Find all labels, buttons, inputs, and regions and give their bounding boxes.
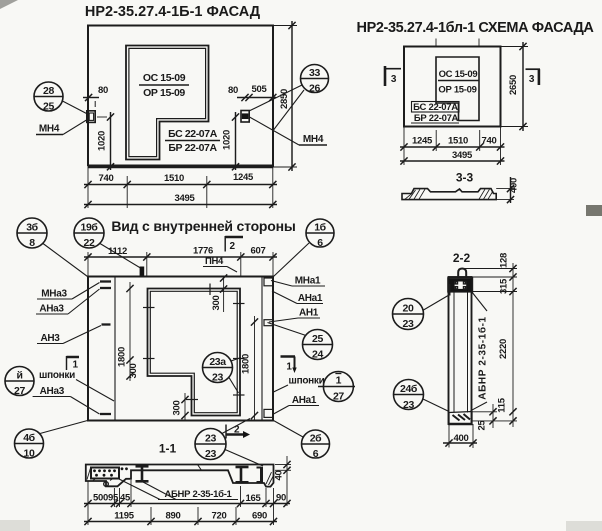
svg-text:1: 1	[286, 362, 292, 373]
svg-text:АНа1: АНа1	[298, 293, 323, 304]
svg-text:720: 720	[212, 511, 227, 522]
svg-text:2220: 2220	[498, 339, 509, 359]
svg-text:МНа1: МНа1	[295, 276, 321, 287]
svg-text:23: 23	[212, 372, 223, 384]
svg-text:40: 40	[274, 471, 285, 481]
svg-text:1776: 1776	[193, 246, 213, 257]
svg-text:24б: 24б	[400, 383, 418, 395]
svg-text:2: 2	[234, 425, 240, 436]
svg-text:МН4: МН4	[39, 124, 60, 135]
svg-text:20: 20	[403, 303, 414, 315]
svg-text:2-2: 2-2	[453, 251, 471, 265]
svg-text:3-3: 3-3	[456, 171, 474, 185]
svg-text:23: 23	[403, 318, 414, 330]
svg-text:607: 607	[251, 246, 266, 257]
svg-text:6: 6	[313, 448, 319, 460]
svg-text:690: 690	[252, 511, 267, 522]
svg-text:22: 22	[84, 237, 95, 249]
svg-text:500: 500	[93, 493, 108, 504]
svg-text:23: 23	[205, 448, 216, 460]
svg-text:2650: 2650	[508, 75, 519, 95]
svg-text:25: 25	[312, 333, 323, 345]
svg-text:24: 24	[312, 349, 323, 361]
svg-text:80: 80	[228, 85, 238, 96]
svg-text:27: 27	[333, 391, 344, 403]
svg-text:2: 2	[230, 241, 236, 252]
svg-text:315: 315	[499, 278, 510, 294]
svg-text:1800: 1800	[241, 354, 252, 374]
svg-text:БР 22-07А: БР 22-07А	[168, 142, 217, 154]
svg-text:165: 165	[246, 493, 262, 504]
svg-text:2б: 2б	[310, 433, 322, 445]
svg-text:3495: 3495	[452, 150, 473, 161]
svg-text:1: 1	[73, 360, 79, 371]
svg-text:6: 6	[317, 237, 323, 249]
svg-text:МНа3: МНа3	[41, 289, 67, 300]
svg-text:300: 300	[128, 364, 139, 379]
svg-text:АБНР 2-35-1б-1: АБНР 2-35-1б-1	[477, 316, 489, 399]
svg-text:АНа3: АНа3	[39, 304, 64, 315]
svg-text:НР2-35.27.4-1Б-1 ФАСАД: НР2-35.27.4-1Б-1 ФАСАД	[85, 4, 261, 20]
svg-text:1020: 1020	[97, 131, 108, 151]
svg-text:1112: 1112	[108, 246, 127, 257]
svg-text:АНа1: АНа1	[292, 395, 317, 406]
svg-text:БС 22-07А: БС 22-07А	[168, 128, 218, 140]
svg-text:1-1: 1-1	[159, 442, 177, 456]
svg-text:1245: 1245	[233, 172, 254, 183]
svg-text:400: 400	[454, 433, 469, 444]
svg-text:300: 300	[211, 296, 222, 311]
svg-text:АН1: АН1	[299, 308, 319, 319]
svg-text:33: 33	[309, 67, 320, 79]
svg-text:19б: 19б	[81, 222, 99, 234]
svg-text:28: 28	[43, 85, 54, 97]
svg-text:505: 505	[252, 84, 268, 95]
svg-text:128: 128	[499, 253, 510, 268]
svg-text:3: 3	[391, 74, 397, 85]
svg-text:23: 23	[205, 433, 216, 445]
svg-text:1: 1	[336, 375, 342, 387]
svg-text:ОР 15-09: ОР 15-09	[438, 85, 476, 96]
svg-text:1195: 1195	[114, 511, 134, 522]
svg-text:3б: 3б	[26, 222, 38, 234]
svg-text:80: 80	[98, 85, 108, 96]
svg-text:1800: 1800	[117, 347, 128, 367]
svg-text:740: 740	[99, 173, 114, 184]
svg-text:1510: 1510	[448, 136, 468, 147]
svg-text:АНа3: АНа3	[40, 386, 65, 397]
svg-text:БР 22-07А: БР 22-07А	[414, 113, 459, 124]
svg-text:БС 22-07А: БС 22-07А	[413, 102, 458, 113]
svg-text:ОС 15-09: ОС 15-09	[143, 72, 186, 84]
svg-text:й: й	[16, 370, 22, 382]
svg-text:95: 95	[108, 493, 119, 504]
svg-text:1020: 1020	[222, 130, 233, 150]
svg-text:1б: 1б	[314, 222, 326, 234]
svg-text:90: 90	[276, 493, 286, 504]
svg-text:НР2-35.27.4-1бл-1 СХЕМА ФАСАДА: НР2-35.27.4-1бл-1 СХЕМА ФАСАДА	[357, 20, 595, 36]
svg-text:3: 3	[529, 74, 535, 85]
svg-text:ПН4: ПН4	[205, 256, 224, 267]
svg-text:400: 400	[509, 178, 520, 193]
svg-text:890: 890	[166, 511, 181, 522]
svg-text:23а: 23а	[209, 356, 226, 368]
svg-text:4б: 4б	[23, 432, 35, 444]
svg-text:740: 740	[482, 136, 497, 147]
svg-text:1245: 1245	[412, 136, 433, 147]
svg-text:45: 45	[120, 493, 131, 504]
svg-text:23: 23	[403, 399, 414, 411]
svg-text:3495: 3495	[175, 193, 196, 204]
svg-text:ОР 15-09: ОР 15-09	[143, 87, 185, 99]
svg-text:10: 10	[24, 448, 35, 460]
svg-text:Вид с внутренней стороны: Вид с внутренней стороны	[111, 218, 295, 234]
svg-text:ОС 15-09: ОС 15-09	[439, 69, 478, 80]
svg-text:25: 25	[477, 420, 488, 431]
svg-text:26: 26	[309, 83, 320, 95]
svg-text:АН3: АН3	[40, 333, 60, 344]
svg-text:шпонки: шпонки	[289, 376, 325, 387]
svg-text:115: 115	[497, 397, 508, 412]
svg-text:8: 8	[29, 237, 35, 249]
svg-text:шпонки: шпонки	[39, 370, 75, 381]
svg-text:1510: 1510	[164, 173, 184, 184]
svg-text:25: 25	[43, 101, 54, 113]
svg-text:300: 300	[172, 401, 183, 416]
svg-text:27: 27	[14, 385, 25, 397]
svg-text:МН4: МН4	[303, 134, 324, 145]
